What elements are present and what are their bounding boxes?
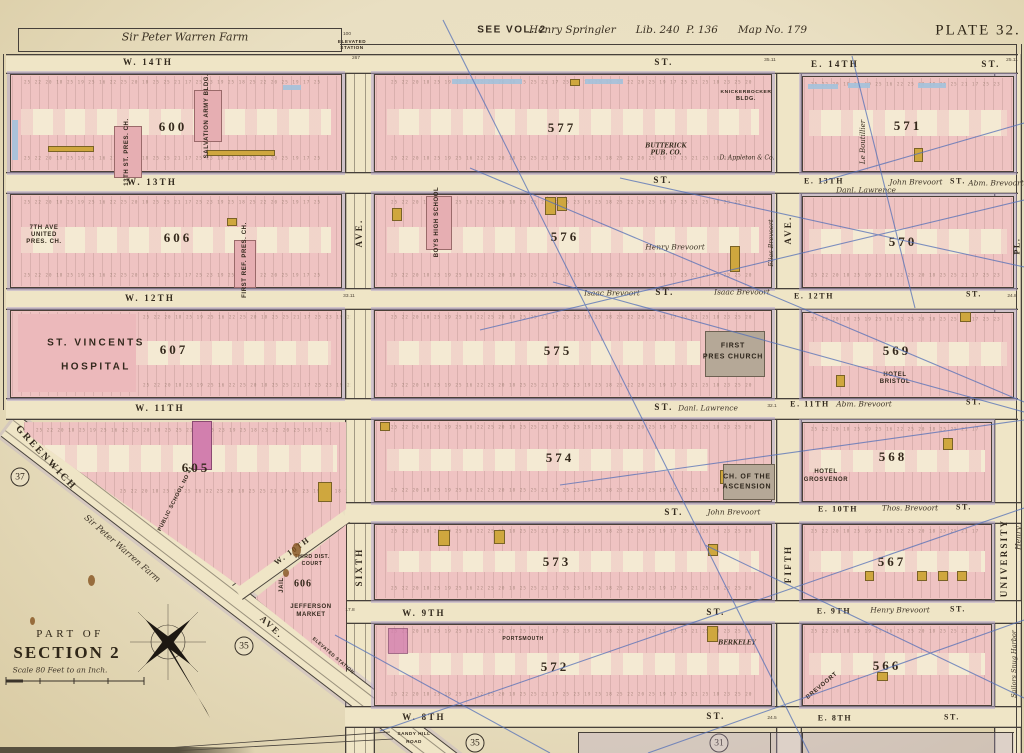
frame-lot bbox=[380, 422, 390, 431]
street-label-e9-st: ST. bbox=[950, 605, 966, 614]
avenue-label-sixth-ave: AVE. bbox=[354, 219, 364, 248]
elevated-station-label-2: STATION bbox=[340, 45, 363, 50]
block-number: 600 bbox=[159, 119, 188, 135]
elevated-station-dim: 100 bbox=[343, 32, 351, 37]
street-label-e13: E. 13TH bbox=[804, 177, 844, 186]
block-number: 568 bbox=[879, 449, 908, 465]
water-blue-lot bbox=[918, 83, 946, 88]
partial-block-edge bbox=[1012, 732, 1013, 753]
street-label-w11: W. 11TH bbox=[135, 403, 185, 413]
top-neat-line bbox=[340, 44, 1016, 45]
street-label-w12: W. 12TH bbox=[125, 293, 175, 303]
berkeley-label: BERKELEY bbox=[718, 640, 756, 647]
jefferson-market-label-2: MARKET bbox=[296, 612, 325, 618]
knickerbocker-label: KNICKERBOCKER bbox=[720, 89, 771, 94]
jail-label: JAIL bbox=[279, 577, 285, 592]
first-ref-pres-label: FIRST REF. PRES. CH. bbox=[242, 222, 248, 298]
frame-lot bbox=[865, 571, 874, 581]
butterick-label: BUTTERICK bbox=[645, 143, 686, 150]
lot-numbers: 25 22 20 18 25 19 25 16 22 25 20 18 25 2… bbox=[36, 428, 331, 433]
owner-danl-lawrence: Danl. Lawrence bbox=[836, 186, 896, 195]
dim-number: 25.11 bbox=[1006, 58, 1018, 63]
magenta-lot bbox=[388, 628, 408, 654]
le-boutillier-label: Le Boutillier bbox=[859, 120, 867, 164]
lot-numbers: 25 22 20 18 25 19 25 16 22 25 20 18 25 2… bbox=[391, 156, 751, 161]
frame-lot bbox=[938, 571, 948, 581]
street-label-10th-st: ST. bbox=[664, 507, 683, 517]
frame-lot bbox=[438, 530, 450, 546]
knickerbocker-label-2: BLDG. bbox=[736, 96, 756, 102]
partial-block-strip bbox=[578, 732, 1014, 753]
water-blue-lot bbox=[283, 85, 301, 90]
ascension-church-building bbox=[723, 464, 775, 500]
water-blue-lot bbox=[808, 84, 838, 89]
plate-ref-35-bottom: 35 bbox=[466, 734, 485, 753]
scale-label: Scale 80 Feet to an Inch. bbox=[13, 666, 108, 675]
ink-stain bbox=[292, 543, 301, 557]
pres-7th-ave-label-3: PRES. CH. bbox=[26, 239, 61, 245]
avenue-label-fifth: FIFTH bbox=[783, 545, 793, 584]
plate-ref-35-mid: 35 bbox=[235, 637, 254, 656]
dim-number: 24.5 bbox=[767, 716, 776, 721]
owner-sailors-snug-harbor: Sailors Snug Harbor bbox=[1010, 630, 1018, 698]
lot-numbers: 25 22 20 18 25 19 25 16 22 25 20 18 25 2… bbox=[391, 629, 751, 634]
avenue-label-pl: PL. bbox=[1013, 237, 1022, 254]
frame-lot bbox=[48, 146, 94, 152]
part-of-label: PART OF bbox=[36, 628, 104, 640]
yard-band bbox=[387, 653, 759, 675]
lot-numbers: 25 22 20 18 25 19 25 16 22 25 20 18 25 2… bbox=[811, 317, 1002, 322]
lot-numbers: 25 22 20 18 25 19 25 16 22 25 20 18 25 2… bbox=[24, 200, 324, 205]
street-label-e11-st: ST. bbox=[966, 398, 982, 407]
lot-numbers: 25 22 20 18 25 19 25 16 22 25 20 18 25 2… bbox=[811, 629, 982, 634]
frame-lot bbox=[957, 571, 967, 581]
dim-number: 267 bbox=[352, 56, 360, 61]
lot-numbers: 25 22 20 18 25 19 25 16 22 25 20 18 25 2… bbox=[24, 156, 324, 161]
street-label-e11: E. 11TH bbox=[790, 400, 830, 409]
frame-lot bbox=[392, 208, 402, 221]
plate-ref-number: 37 bbox=[15, 472, 25, 482]
frame-lot bbox=[227, 218, 237, 226]
water-blue-lot bbox=[848, 83, 870, 88]
water-blue-lot bbox=[585, 79, 623, 84]
atlas-map-plate: 25 22 20 18 25 19 25 16 22 25 20 18 25 2… bbox=[0, 0, 1024, 753]
plate-number: PLATE 32. bbox=[935, 23, 1021, 40]
elevated-station-label: ELEVATED bbox=[338, 39, 366, 44]
frame-lot bbox=[836, 375, 845, 387]
street-label-w14: W. 14TH bbox=[123, 57, 173, 67]
deed-note-script: Henry Springler Lib. 240 P. 136 Map No. … bbox=[529, 24, 807, 36]
plate-ref-37: 37 bbox=[11, 468, 30, 487]
lot-numbers: 25 22 20 18 25 19 25 16 22 25 20 18 25 2… bbox=[811, 529, 982, 534]
street-label-e9: E. 9TH bbox=[817, 607, 852, 616]
street-label-w8-st: ST. bbox=[706, 711, 725, 721]
street-8th bbox=[345, 706, 1022, 728]
pres-7th-ave-label: 7TH AVE bbox=[30, 225, 59, 231]
first-pres-church-label-2: PRES CHURCH bbox=[703, 354, 763, 361]
frame-lot bbox=[570, 79, 580, 86]
pres-church-13th-label: 13TH ST. PRES. CH. bbox=[124, 118, 130, 185]
hotel-bristol-label: HOTEL bbox=[883, 372, 906, 378]
partial-block-edge bbox=[802, 732, 803, 753]
lot-numbers: 25 22 20 18 25 19 25 16 22 25 20 18 25 2… bbox=[143, 383, 351, 388]
plate-ref-number: 35 bbox=[470, 738, 480, 748]
page-edge-shadow bbox=[0, 747, 255, 753]
lot-numbers: 25 22 20 18 25 19 25 16 22 25 20 18 25 2… bbox=[391, 315, 751, 320]
frame-lot bbox=[707, 626, 718, 642]
sandy-hill-road-label: SANDY HILL bbox=[397, 731, 430, 736]
block-number: 573 bbox=[543, 554, 572, 570]
block-number: 571 bbox=[894, 118, 923, 134]
street-label-w8: W. 8TH bbox=[402, 712, 445, 722]
street-label-w12-st: ST. bbox=[655, 287, 674, 297]
street-label-w13: W. 13TH bbox=[127, 177, 177, 187]
avenue-label-sixth: SIXTH bbox=[354, 547, 364, 586]
plate-ref-number: 35 bbox=[239, 641, 249, 651]
owner-danl-lawrence-2: Danl. Lawrence bbox=[678, 404, 738, 413]
block-number: 575 bbox=[544, 343, 573, 359]
block-number: 607 bbox=[160, 342, 189, 358]
avenue-label-fifth-ave: AVE. bbox=[783, 216, 793, 245]
first-pres-church-label: FIRST bbox=[721, 343, 745, 350]
ink-stain bbox=[283, 569, 289, 577]
sandy-hill-road-label-2: ROAD bbox=[406, 739, 422, 744]
jefferson-market-label: JEFFERSON bbox=[290, 604, 331, 610]
street-label-w14-st: ST. bbox=[654, 57, 673, 67]
right-neat-line-2 bbox=[1021, 44, 1022, 753]
owner-elias-brevoort: Elias Brevoort bbox=[767, 219, 775, 266]
frame-lot bbox=[917, 571, 927, 581]
street-label-e12-st: ST. bbox=[966, 290, 982, 299]
frame-lot bbox=[557, 197, 567, 211]
owner-isaac-brevoort-2: Isaac Brevoort bbox=[714, 288, 770, 297]
block-number: 577 bbox=[548, 120, 577, 136]
lot-numbers: 25 22 20 18 25 19 25 16 22 25 20 18 25 2… bbox=[391, 586, 751, 591]
third-dist-court-label: THIRD DIST. bbox=[294, 554, 329, 559]
street-label-w13-st: ST. bbox=[653, 175, 672, 185]
dim-number: 35.11 bbox=[764, 58, 776, 63]
section-label: SECTION 2 bbox=[13, 643, 120, 663]
frame-lot bbox=[207, 150, 275, 156]
street-label-e12: E. 12TH bbox=[794, 292, 834, 301]
portsmouth-label: PORTSMOUTH bbox=[502, 636, 543, 641]
street-label-e10: E. 10TH bbox=[818, 505, 858, 514]
block-number: 567 bbox=[878, 554, 907, 570]
lot-numbers: 25 22 20 18 25 19 25 16 22 25 20 18 25 2… bbox=[811, 427, 982, 432]
hotel-bristol-label-2: BRISTOL bbox=[880, 379, 910, 385]
street-label-w9: W. 9TH bbox=[402, 608, 445, 618]
lot-numbers: 25 22 20 18 25 19 25 16 22 25 20 18 25 2… bbox=[24, 80, 324, 85]
st-vincents-label-2: HOSPITAL bbox=[61, 362, 131, 373]
owner-john-brevoort: John Brevoort bbox=[890, 178, 943, 187]
street-label-e14: E. 14TH bbox=[811, 59, 859, 69]
lot-numbers: 25 22 20 18 25 19 25 16 22 25 20 18 25 2… bbox=[391, 383, 751, 388]
ascension-label: CH. OF THE bbox=[723, 474, 771, 481]
block-number: 569 bbox=[883, 343, 912, 359]
frame-lot bbox=[943, 438, 953, 450]
farm-title-script: Sir Peter Warren Farm bbox=[122, 31, 249, 44]
pres-7th-ave-label-2: UNITED bbox=[31, 232, 57, 238]
owner-henry-brevoort-block: Henry Brevoort bbox=[645, 243, 704, 252]
st-vincents-label: ST. VINCENTS bbox=[47, 338, 145, 349]
yard-band bbox=[387, 551, 759, 572]
owner-abm-brevoort: Abm. Brevoort bbox=[968, 179, 1024, 188]
frame-lot bbox=[545, 197, 556, 215]
hotel-grosvenor-label: HOTEL bbox=[814, 469, 837, 475]
lot-numbers: 25 22 20 18 25 19 25 16 22 25 20 18 25 2… bbox=[811, 273, 1002, 278]
street-label-e14-st: ST. bbox=[981, 59, 1000, 69]
water-blue-lot bbox=[452, 79, 522, 84]
owner-abm-brevoort-2: Abm. Brevoort bbox=[836, 400, 892, 409]
street-label-e8-st: ST. bbox=[944, 713, 960, 722]
scale-bar bbox=[4, 674, 154, 686]
ink-stain bbox=[30, 617, 35, 625]
frame-lot bbox=[708, 544, 718, 556]
owner-henry-brevoort: Henry Brevoort bbox=[870, 606, 929, 615]
owner-thos-brevoort: Thos. Brevoort bbox=[882, 504, 938, 513]
third-dist-court-label-2: COURT bbox=[302, 561, 323, 566]
owner-isaac-brevoort: Isaac Brevoort bbox=[584, 289, 640, 298]
lot-numbers: 25 22 20 18 25 19 25 16 22 25 20 18 25 2… bbox=[391, 692, 751, 697]
lot-numbers: 25 22 20 18 25 19 25 16 22 25 20 18 25 2… bbox=[143, 315, 351, 320]
frame-lot bbox=[494, 530, 505, 544]
street-label-w11-st: ST. bbox=[654, 402, 673, 412]
lot-numbers: 25 22 20 18 25 19 25 16 22 25 20 18 25 2… bbox=[120, 489, 347, 494]
st-vincents-hospital-building bbox=[18, 314, 137, 391]
frame-lot bbox=[730, 246, 740, 272]
left-neat-line bbox=[3, 54, 4, 410]
partial-block-edge bbox=[578, 732, 579, 753]
street-label-e10-st: ST. bbox=[956, 503, 972, 512]
frame-lot bbox=[318, 482, 332, 502]
salvation-army-label: SALVATION ARMY BLDG. bbox=[204, 74, 210, 159]
ink-stain bbox=[88, 575, 95, 586]
block-573: 25 22 20 18 25 19 25 16 22 25 20 18 25 2… bbox=[374, 524, 772, 600]
owner-john-brevoort-2: John Brevoort bbox=[708, 508, 761, 517]
street-label-e13-st: ST. bbox=[950, 177, 966, 186]
block-number: 570 bbox=[889, 234, 918, 250]
appleton-label: D. Appleton & Co. bbox=[720, 155, 775, 162]
dim-number: 17.8 bbox=[345, 608, 354, 613]
lot-numbers: 25 22 20 18 25 19 25 16 22 25 20 18 25 2… bbox=[811, 82, 1002, 87]
owner-henry-edge: Henry bbox=[1014, 526, 1023, 550]
frame-lot bbox=[960, 312, 971, 322]
lot-numbers: 25 22 20 18 25 19 25 16 22 25 20 18 25 2… bbox=[391, 488, 751, 493]
compass-rose bbox=[118, 592, 228, 722]
lot-numbers: 25 22 20 18 25 19 25 16 22 25 20 18 25 2… bbox=[24, 273, 324, 278]
frame-lot bbox=[914, 148, 923, 162]
street-label-w9-st: ST. bbox=[706, 607, 725, 617]
water-blue-lot bbox=[12, 120, 18, 160]
block-number: 566 bbox=[873, 658, 902, 674]
block-number: 606 bbox=[164, 230, 193, 246]
street-label-e8: E. 8TH bbox=[818, 714, 853, 723]
ascension-label-2: ASCENSION bbox=[723, 484, 772, 491]
dim-number: 32.1 bbox=[767, 404, 776, 409]
partial-block-edge bbox=[770, 732, 771, 753]
block-number: 572 bbox=[541, 659, 570, 675]
lot-numbers: 25 22 20 18 25 19 25 16 22 25 20 18 25 2… bbox=[391, 425, 751, 430]
block-number: 606 bbox=[294, 579, 312, 590]
avenue-label-university: UNIVERSITY bbox=[999, 519, 1009, 598]
dim-number: 24.8 bbox=[1007, 294, 1016, 299]
butterick-label-2: PUB. CO. bbox=[651, 150, 682, 157]
lot-numbers: 25 22 20 18 25 19 25 16 22 25 20 18 25 2… bbox=[391, 273, 751, 278]
block-number: 576 bbox=[551, 229, 580, 245]
hotel-grosvenor-label-2: GROSVENOR bbox=[804, 477, 848, 483]
block-number: 574 bbox=[546, 450, 575, 466]
boys-high-school-label: BOYS HIGH SCHOOL bbox=[434, 187, 440, 258]
dim-number: 33.11 bbox=[343, 294, 355, 299]
